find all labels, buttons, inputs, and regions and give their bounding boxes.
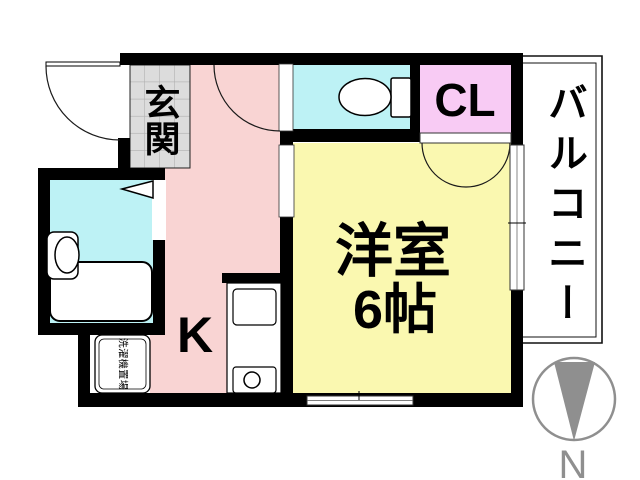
- wall-toilet-bottom: [280, 129, 420, 142]
- wall-bath-top: [38, 168, 165, 180]
- kitchen-area-upper: [190, 65, 282, 170]
- floor-plan: N 玄関 K 洋室 6帖 CL バルコニー 洗濯機置場: [0, 0, 640, 480]
- kitchen-burner-ring: [244, 372, 260, 388]
- entry-door-leaf: [46, 62, 120, 66]
- western-room-size-label: 6帖: [353, 280, 437, 340]
- entrance-label: 玄関: [140, 84, 181, 156]
- kitchen-label: K: [177, 307, 213, 363]
- washbasin-bowl: [55, 237, 79, 273]
- closet-label: CL: [434, 74, 495, 126]
- wall-bath-bottom: [38, 323, 165, 335]
- kitchen-room-opening: [279, 145, 294, 217]
- balcony-label: バルコニー: [542, 82, 586, 332]
- wall-bottom: [78, 393, 523, 407]
- toilet-doorway: [279, 64, 293, 131]
- wall-entry-stub: [118, 138, 130, 170]
- compass-north-label: N: [559, 443, 588, 480]
- wall-top: [120, 53, 523, 65]
- kitchen-area-lower: [150, 335, 167, 393]
- wall-counter-stub: [222, 273, 284, 283]
- kitchen-sink: [233, 289, 276, 325]
- bathroom-doorway: [152, 180, 166, 240]
- closet-door-strip: [420, 133, 511, 143]
- western-room-label: 洋室: [335, 219, 451, 284]
- wall-east-upper: [511, 53, 523, 145]
- laundry-label: 洗濯機置場: [117, 338, 130, 391]
- toilet-tank: [391, 78, 411, 117]
- wall-east-lower: [511, 290, 523, 407]
- toilet-bowl: [339, 79, 391, 116]
